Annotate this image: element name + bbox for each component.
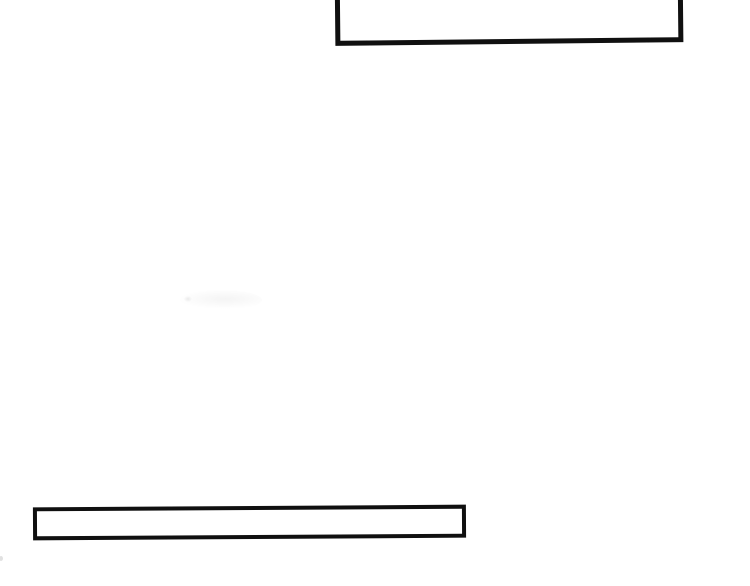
left-edge-speck xyxy=(0,556,3,561)
faint-smudge-dot xyxy=(184,296,192,302)
top-caption-box xyxy=(335,0,684,46)
comic-page-background xyxy=(0,0,750,586)
bottom-caption-box xyxy=(33,505,466,541)
faint-smudge xyxy=(180,290,262,310)
